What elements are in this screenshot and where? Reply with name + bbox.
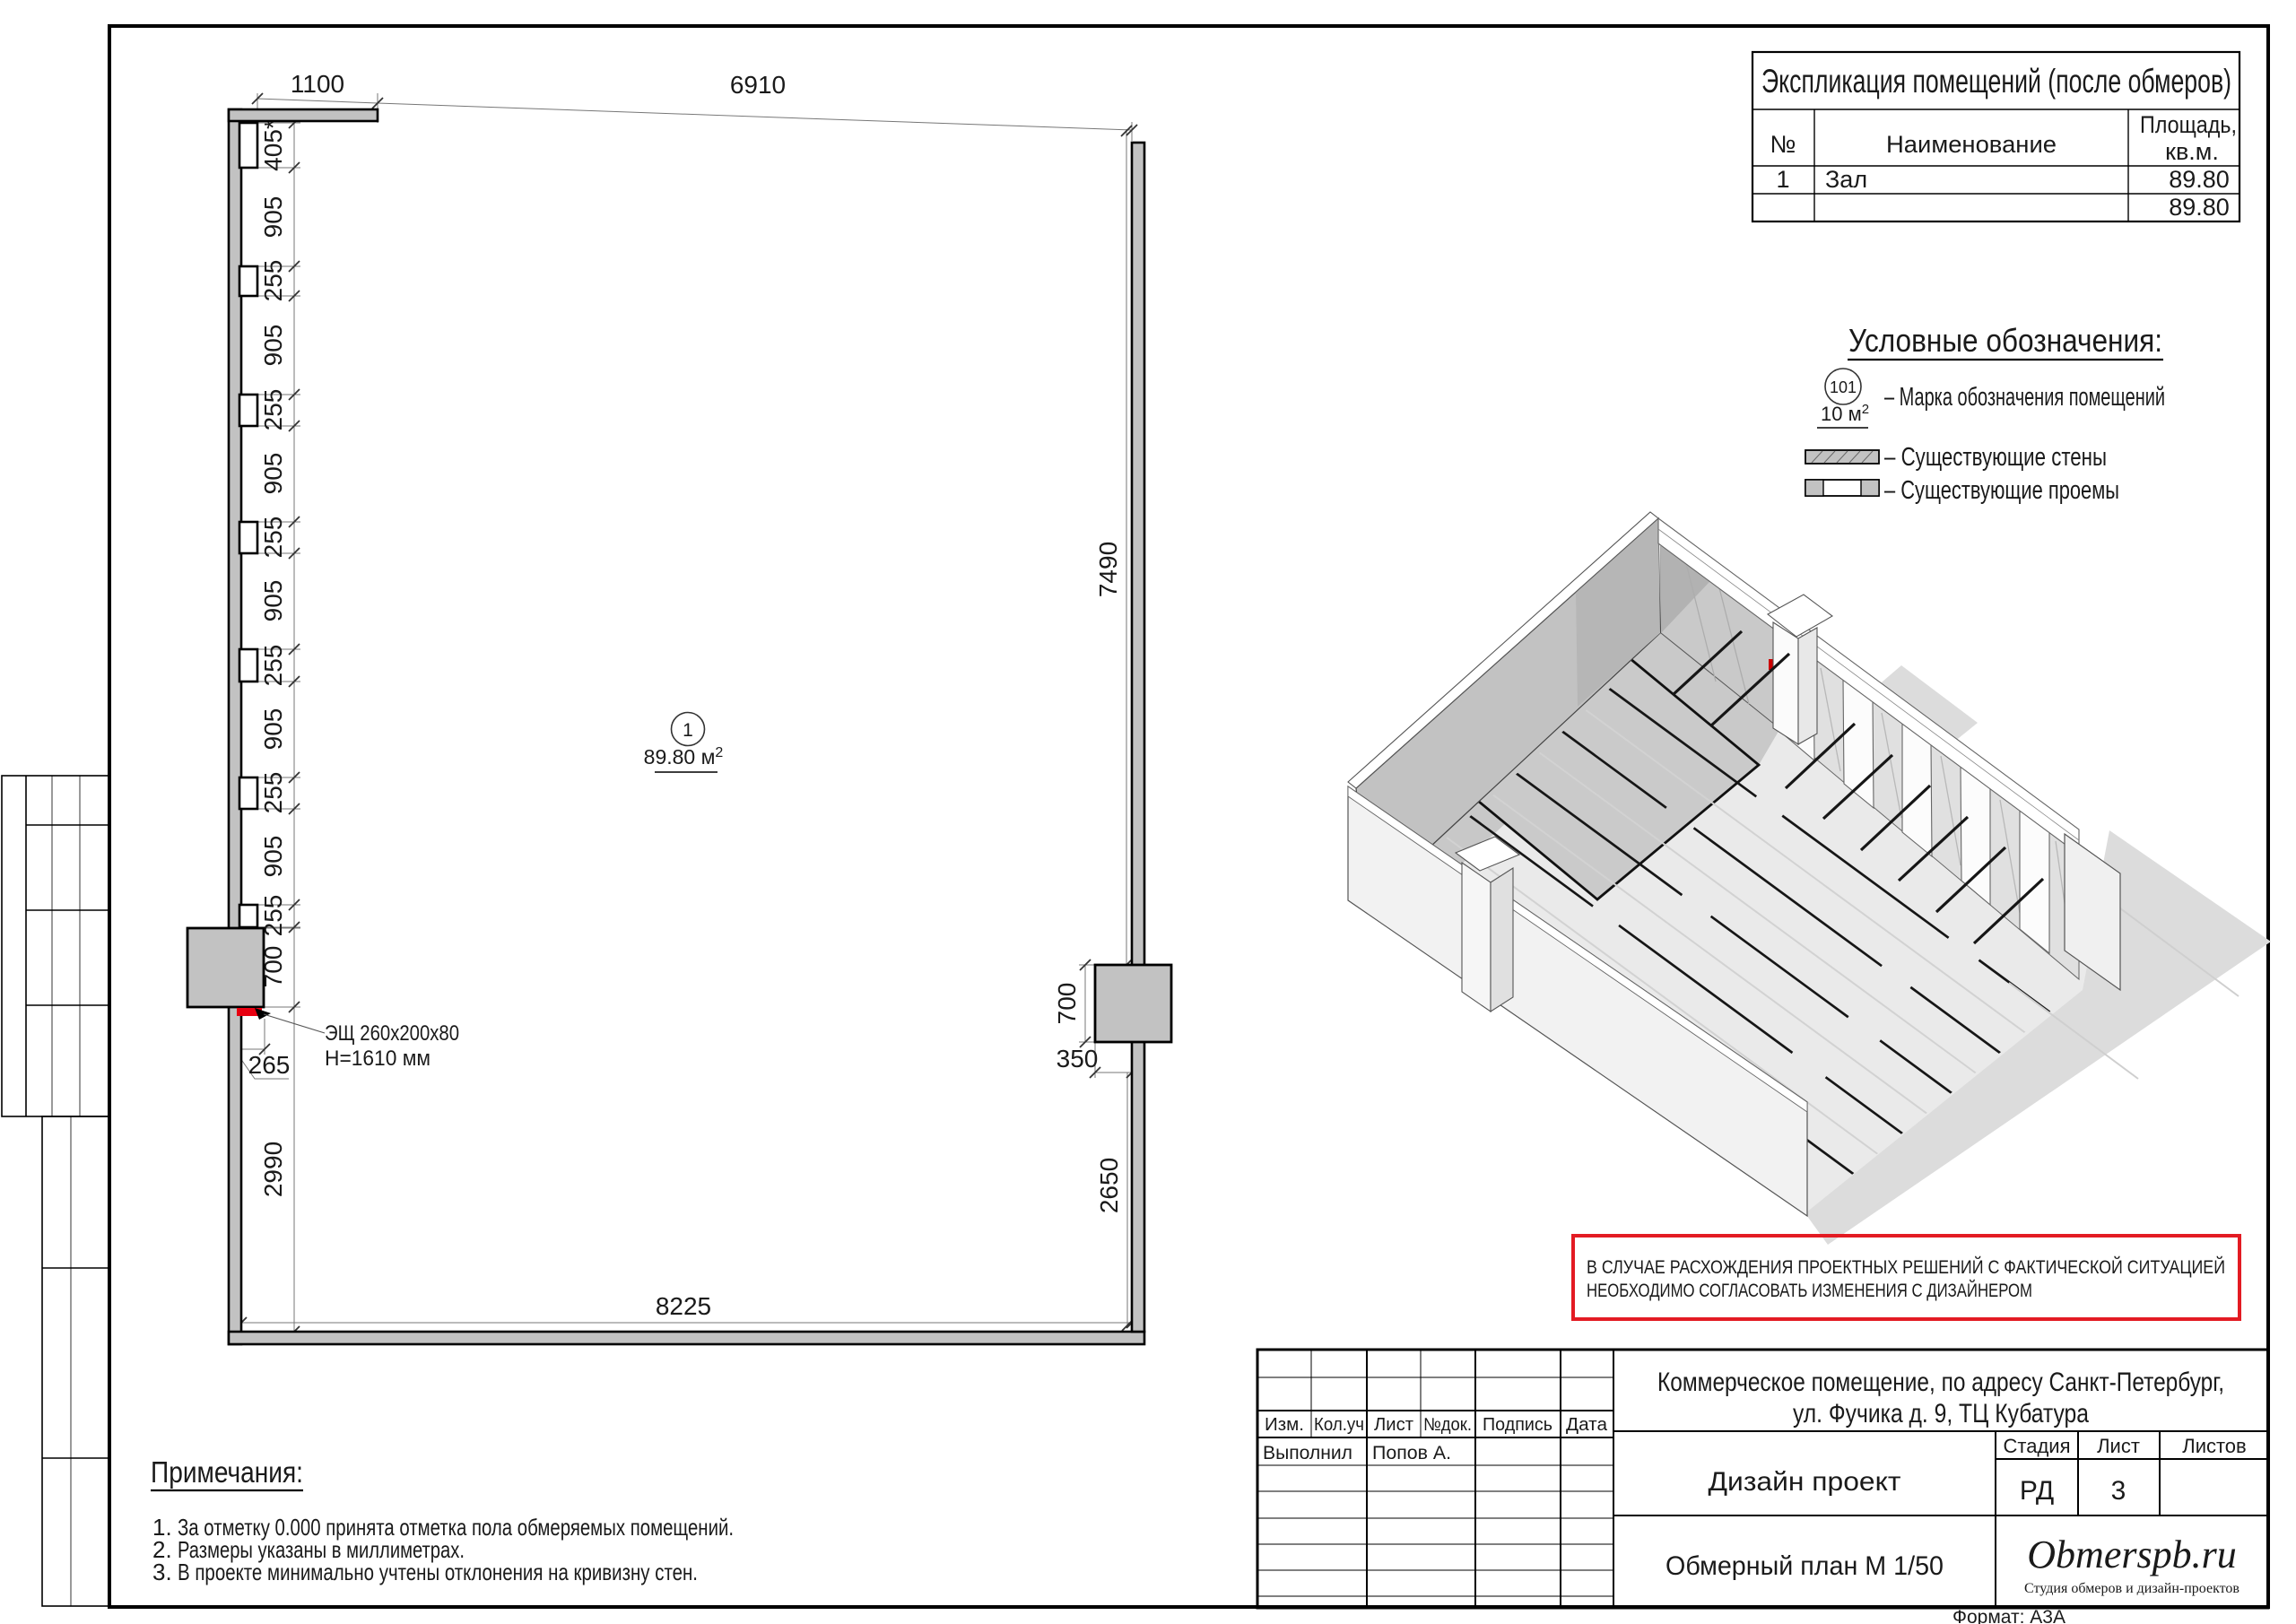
svg-text:2650: 2650 [1095,1158,1123,1213]
svg-text:255: 255 [259,645,287,687]
svg-text:– Существующие проемы: – Существующие проемы [1884,476,2119,505]
svg-text:2990: 2990 [259,1142,287,1197]
svg-text:8225: 8225 [656,1292,711,1320]
svg-text:905: 905 [259,325,287,367]
svg-text:Наименование: Наименование [1886,131,2057,158]
svg-text:Обмерный план М 1/50: Обмерный план М 1/50 [1665,1551,1944,1581]
svg-text:Obmerspb.ru: Obmerspb.ru [2027,1533,2236,1576]
svg-text:№док.: №док. [1423,1415,1472,1435]
svg-text:905: 905 [259,708,287,751]
svg-text:1: 1 [1776,166,1789,193]
svg-text:Экспликация помещений (после о: Экспликация помещений (после обмеров) [1761,63,2231,100]
svg-text:6910: 6910 [730,71,786,99]
svg-text:101: 101 [1830,378,1857,396]
svg-text:Коммерческое помещение, по адр: Коммерческое помещение, по адресу Санкт-… [1657,1368,2224,1397]
svg-text:ЭЩ 260x200x80: ЭЩ 260x200x80 [325,1021,459,1046]
svg-text:№: № [1770,131,1796,158]
svg-text:В проекте минимально учтены от: В проекте минимально учтены отклонения н… [178,1559,698,1585]
svg-text:7490: 7490 [1094,542,1122,597]
svg-text:3: 3 [2111,1476,2126,1506]
svg-text:В СЛУЧАЕ РАСХОЖДЕНИЯ ПРОЕКТНЫХ: В СЛУЧАЕ РАСХОЖДЕНИЯ ПРОЕКТНЫХ РЕШЕНИЙ С… [1587,1256,2225,1278]
svg-text:905: 905 [259,836,287,878]
svg-text:Стадия: Стадия [2004,1435,2071,1457]
svg-text:Кол.уч: Кол.уч [1314,1415,1364,1435]
svg-text:Подпись: Подпись [1483,1415,1552,1435]
svg-text:РД: РД [2020,1476,2054,1506]
svg-text:– Марка обозначения помещений: – Марка обозначения помещений [1884,383,2165,412]
svg-text:Листов: Листов [2182,1435,2246,1457]
svg-text:89.80: 89.80 [2169,194,2230,221]
svg-text:Н=1610 мм: Н=1610 мм [325,1046,430,1071]
svg-text:700: 700 [1053,983,1081,1025]
svg-text:Площадь,: Площадь, [2140,111,2237,138]
svg-text:1: 1 [683,720,693,741]
svg-text:405*: 405* [259,119,287,171]
svg-text:кв.м.: кв.м. [2165,138,2219,165]
svg-text:Примечания:: Примечания: [151,1455,303,1489]
svg-text:Студия обмеров и дизайн-проект: Студия обмеров и дизайн-проектов [2024,1581,2239,1596]
svg-text:Зал: Зал [1825,166,1867,193]
svg-text:265: 265 [248,1051,291,1079]
svg-text:Выполнил: Выполнил [1263,1443,1352,1463]
svg-text:3.: 3. [152,1559,172,1585]
svg-text:255: 255 [259,260,287,302]
svg-text:905: 905 [259,196,287,239]
svg-text:1100: 1100 [291,70,344,98]
svg-text:Дата: Дата [1566,1415,1608,1435]
svg-text:350: 350 [1057,1045,1099,1073]
svg-text:Дизайн проект: Дизайн проект [1709,1467,1901,1497]
svg-text:89.80: 89.80 [2169,166,2230,193]
svg-text:89.80 м2: 89.80 м2 [644,745,724,769]
svg-text:Изм.: Изм. [1265,1415,1304,1435]
svg-text:НЕОБХОДИМО СОГЛАСОВАТЬ ИЗМЕНЕН: НЕОБХОДИМО СОГЛАСОВАТЬ ИЗМЕНЕНИЯ С ДИЗАЙ… [1587,1280,2032,1301]
svg-text:Условные обозначения:: Условные обозначения: [1848,322,2162,359]
svg-text:Попов А.: Попов А. [1372,1443,1451,1463]
svg-text:255: 255 [259,772,287,814]
svg-text:Формат: А3А: Формат: А3А [1952,1607,2066,1624]
svg-text:– Существующие стены: – Существующие стены [1884,443,2107,472]
svg-text:ул. Фучика д. 9, ТЦ Кубатура: ул. Фучика д. 9, ТЦ Кубатура [1793,1399,2089,1429]
svg-text:Лист: Лист [1374,1415,1413,1435]
svg-text:255: 255 [259,389,287,431]
svg-text:905: 905 [259,453,287,495]
svg-text:905: 905 [259,580,287,622]
svg-text:255: 255 [259,517,287,559]
svg-text:Лист: Лист [2097,1435,2140,1457]
